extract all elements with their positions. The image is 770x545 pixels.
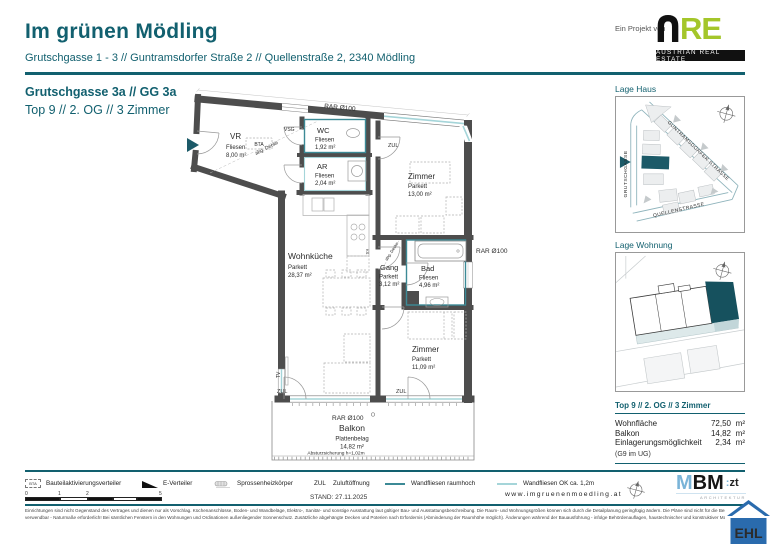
wc-fixtures	[347, 129, 360, 138]
wandfliesen-raumhoch-icon	[385, 483, 405, 485]
room-zimmer1-name: Zimmer	[408, 172, 435, 181]
row-value: 72,50	[705, 419, 731, 429]
stand-date: STAND: 27.11.2025	[310, 494, 367, 501]
unit-info-panel: Top 9 // 2. OG // 3 Zimmer Wohnfläche 72…	[615, 401, 745, 464]
ks-label: KS	[365, 249, 370, 255]
tv-board	[286, 357, 289, 385]
room-balkon-floor: Plattenbelag	[335, 437, 368, 443]
zul-legend-symbol: ZUL	[314, 480, 326, 487]
page-title: Im grünen Mödling	[25, 20, 218, 44]
fine-print-line1: Einrichtungen sind nicht Gegenstand des …	[25, 508, 725, 513]
plan-unit: Top 9 // 2. OG // 3 Zimmer	[25, 103, 169, 117]
highlighted-building	[641, 156, 669, 170]
lage-haus-map: GUNTRAMSDORFER STRASSE GRUTSCHGASSE QUEL…	[615, 96, 745, 233]
ar-washer	[348, 161, 366, 181]
unit-info-row: Wohnfläche 72,50 m²	[615, 419, 745, 429]
compass-icon	[625, 479, 647, 501]
unit-info-title: Top 9 // 2. OG // 3 Zimmer	[615, 401, 745, 414]
room-bad-area: 4,96 m²	[419, 283, 439, 289]
legend-label-heizkoerper: Sprossenheizkörper	[237, 480, 293, 487]
unit-info-rule	[615, 463, 745, 464]
header-rule	[25, 72, 745, 75]
room-zimmer2-area: 11,09 m²	[412, 365, 435, 371]
legend-label-bta: Bauteilaktivierungsverteiler	[46, 480, 121, 487]
row-unit: m²	[731, 419, 745, 429]
street-label-grutschgasse: GRUTSCHGASSE	[623, 150, 629, 197]
unit-info-note: (G9 im UG)	[615, 451, 745, 458]
zul-label-3: ZUL	[396, 389, 406, 395]
room-wohnkueche-area: 28,37 m²	[288, 273, 312, 279]
footer-rule-top	[25, 470, 745, 472]
radiator-icon	[214, 480, 232, 489]
row-label: Einlagerungsmöglichkeit	[615, 438, 705, 448]
plan-sheet: { "header": { "title": "Im grünen Mödlin…	[0, 0, 770, 545]
room-wc-name: WC	[317, 126, 330, 135]
website-link[interactable]: www.imgruenenmoedling.at	[505, 491, 622, 498]
street-label-quellenstrasse: QUELLENSTRASSE	[653, 201, 706, 219]
scale-segment	[113, 497, 137, 501]
ehl-logo-text: EHL	[735, 525, 763, 541]
zul-label-2: ZUL	[277, 389, 287, 395]
row-unit: m²	[731, 429, 745, 439]
mbm-logo-m: M	[676, 474, 693, 492]
ehl-logo: EHL	[727, 499, 770, 545]
scale-segment	[60, 497, 88, 501]
street-label-guntramsdorfer: GUNTRAMSDORFER STRASSE	[666, 120, 731, 183]
scale-segment	[88, 497, 113, 501]
lage-haus-title: Lage Haus	[615, 84, 656, 94]
unit-info-row: Einlagerungsmöglichkeit 2,34 m²	[615, 438, 745, 448]
row-value: 2,34	[705, 438, 731, 448]
scale-bar: 0 1 2 5	[25, 491, 165, 503]
room-gang-floor: Parkett	[379, 275, 398, 281]
vsg-label: VSG	[284, 127, 295, 133]
room-gang-name: Gang	[380, 263, 398, 272]
sofa-furniture	[324, 334, 370, 393]
room-wc-floor: Fliesen	[315, 138, 334, 144]
row-label: Balkon	[615, 429, 705, 439]
room-wohnkueche-floor: Parkett	[288, 265, 307, 271]
room-bad-floor: Fliesen	[419, 276, 438, 282]
e-verteiler-icon	[142, 480, 158, 489]
room-wc-area: 1,92 m²	[315, 145, 335, 151]
legend-label-zuluft: Zuluftöffnung	[333, 480, 370, 487]
compass-icon	[711, 259, 734, 282]
room-wohnkueche-name: Wohnküche	[288, 251, 333, 261]
room-zimmer2-name: Zimmer	[412, 345, 439, 354]
room-ar-name: AR	[317, 162, 328, 171]
bath-fixtures	[415, 241, 466, 307]
are-logo: RE	[656, 15, 721, 42]
room-balkon-area: 14,82 m²	[340, 445, 364, 451]
wandfliesen-niedrig-icon	[497, 483, 517, 485]
page-subtitle: Grutschgasse 1 - 3 // Guntramsdorfer Str…	[25, 52, 415, 64]
balcony-outline	[272, 401, 474, 460]
legend-label-wandfliesen-hoch: Wandfliesen raumhoch	[411, 480, 475, 487]
context-buildings	[644, 345, 720, 383]
room-gang-area: 3,12 m²	[379, 282, 399, 288]
mbm-logo-bm: BM	[693, 474, 724, 492]
row-value: 14,82	[705, 429, 731, 439]
absturz-label: Absturzsicherung h=1,02m	[307, 451, 364, 457]
zul-label-1: ZUL	[388, 143, 398, 149]
are-arch-icon	[656, 15, 680, 42]
room-zimmer1-area: 13,00 m²	[408, 192, 432, 198]
room-vr-area: 8,00 m²	[226, 153, 246, 159]
legend-label-wandfliesen-niedrig: Wandfliesen OK ca. 1,2m	[523, 480, 594, 487]
mbm-logo: MBM:zt ARCHITEKTUR	[676, 474, 746, 500]
fine-print-line2: verwendbar - Naturmaße erforderlich! Bei…	[25, 515, 725, 520]
room-ar-area: 2,04 m²	[315, 181, 335, 187]
row-label: Wohnfläche	[615, 419, 705, 429]
floorplan: VR Fliesen 8,00 m² WC Fliesen 1,92 m² AR…	[186, 81, 516, 473]
room-balkon-name: Balkon	[339, 423, 365, 433]
row-unit: m²	[731, 438, 745, 448]
room-zimmer1-floor: Parkett	[408, 184, 427, 190]
tv-label: TV	[276, 371, 282, 378]
dining-furniture	[323, 270, 370, 315]
scale-segment	[137, 497, 162, 501]
bedroom2-furniture	[408, 312, 466, 339]
rar-marker-icon	[371, 413, 375, 417]
rar-balcony-label: RAR Ø100	[332, 415, 364, 422]
mbm-logo-zt: zt	[729, 477, 738, 489]
rar-right-label: RAR Ø100	[476, 248, 508, 255]
room-vr-floor: Fliesen	[226, 145, 245, 151]
compass-icon	[715, 102, 738, 125]
legend-label-everteiler: E-Verteiler	[163, 480, 192, 487]
are-logo-caption: AUSTRIAN REAL ESTATE	[656, 50, 745, 61]
room-zimmer2-floor: Parkett	[412, 357, 431, 363]
lage-wohnung-map	[615, 252, 745, 392]
room-vr-name: VR	[230, 132, 241, 141]
footer-rule-bottom	[25, 504, 745, 506]
scale-segment	[25, 497, 60, 501]
bta-legend-icon: BTA	[25, 479, 41, 488]
plan-address: Grutschgasse 3a // GG 3a	[25, 85, 176, 99]
room-ar-floor: Fliesen	[315, 174, 334, 180]
abg-decke-label-2: abg. Decke	[384, 240, 400, 261]
are-logo-re: RE	[680, 16, 721, 42]
room-bad-name: Bad	[421, 264, 434, 273]
lage-wohnung-title: Lage Wohnung	[615, 240, 673, 250]
unit-info-row: Balkon 14,82 m²	[615, 429, 745, 439]
